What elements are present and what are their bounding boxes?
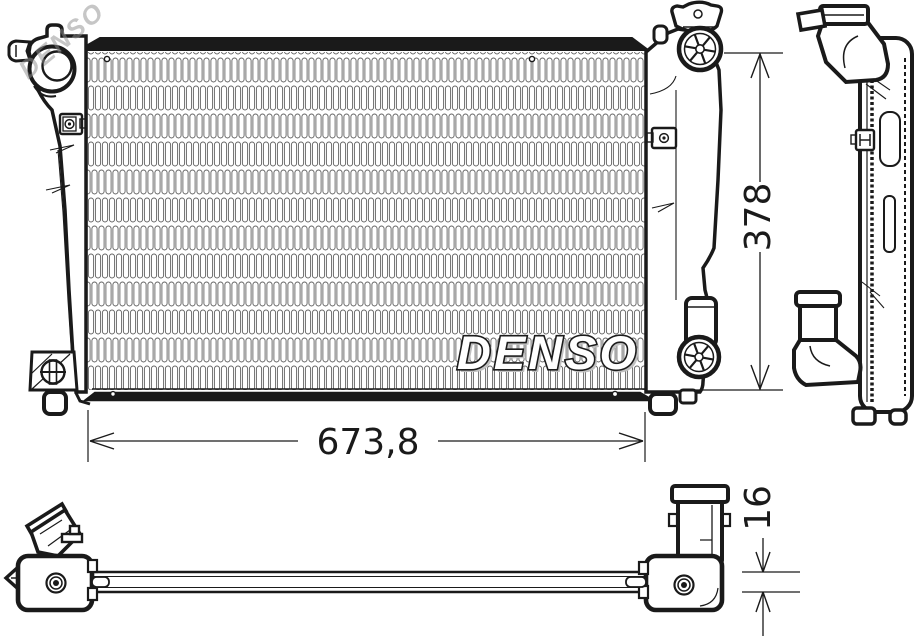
right-bracket-pin-dot	[662, 136, 665, 139]
bottom-right-block-tab-top	[639, 562, 648, 574]
bottom-filler-rim	[672, 486, 728, 502]
right-mounting-foot	[650, 394, 676, 414]
side-outlet-elbow	[794, 340, 861, 385]
bottom-header-hole-left	[111, 392, 116, 397]
depth-dimension: 16	[738, 485, 800, 636]
bottom-left-block-tab-bottom	[88, 588, 97, 600]
height-dim-label: 378	[738, 183, 779, 252]
bottom-right-pin	[626, 577, 646, 587]
bottom-left-tab2	[70, 526, 79, 534]
denso-logo: DENSO DENSO	[457, 326, 642, 382]
width-dim-label: 673,8	[316, 422, 419, 463]
bottom-view: 16	[6, 485, 800, 636]
bottom-left-tab1	[62, 534, 82, 542]
side-outlet-rim	[796, 292, 840, 306]
side-foot-bump	[890, 410, 906, 424]
bottom-right-bolt-center	[681, 582, 687, 588]
top-header	[86, 38, 648, 50]
filler-neck-wheel	[679, 28, 721, 70]
width-dimension: 673,8	[88, 410, 645, 463]
left-tank	[9, 25, 90, 414]
bottom-left-bolt-center	[53, 580, 59, 586]
bottom-neck-nub-left	[669, 514, 677, 526]
bottom-core-strip	[88, 572, 648, 592]
bottom-left-pin	[92, 577, 109, 587]
side-foot	[853, 408, 875, 424]
depth-dim-label: 16	[738, 485, 779, 531]
left-mounting-foot	[44, 392, 66, 414]
side-filler-neck	[818, 20, 888, 82]
denso-logo-text: DENSO	[457, 326, 639, 379]
front-view: DENSO DENSO	[9, 2, 722, 414]
top-header-hole-left	[104, 56, 109, 61]
bottom-header-hole	[612, 391, 617, 396]
side-small-pipe	[798, 10, 825, 30]
bottom-left-block-tab-top	[88, 560, 97, 572]
left-bracket-pin-dot	[68, 122, 71, 125]
bottom-right-tank-end	[626, 486, 730, 610]
filler-side-tab	[654, 26, 667, 43]
drain-wheel	[679, 337, 719, 377]
right-tank	[646, 2, 722, 414]
right-foot-tab	[680, 390, 696, 403]
bottom-left-tank-end	[6, 504, 109, 610]
top-header-hole-right	[529, 56, 534, 61]
side-view	[794, 6, 912, 424]
bottom-header	[86, 393, 652, 400]
radiator-technical-drawing: DENSO DENSO 378 673,8	[0, 0, 920, 639]
